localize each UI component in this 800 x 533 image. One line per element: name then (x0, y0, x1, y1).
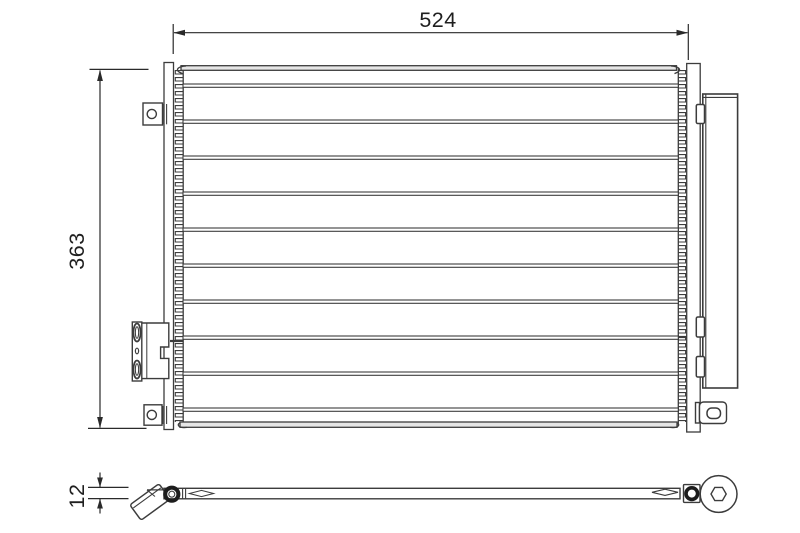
arrowhead-up (97, 70, 103, 81)
receiver-drier (703, 94, 738, 388)
side-view (130, 476, 737, 521)
dim-thickness-label: 12 (65, 484, 89, 509)
tank-fitting-bottom (696, 357, 704, 378)
core-tube (183, 156, 678, 159)
core-tube (183, 84, 678, 87)
core-tube (183, 300, 678, 303)
dimension-thickness: 12 (65, 473, 129, 514)
core-tube (183, 408, 678, 411)
arrowhead-down (97, 478, 103, 488)
core-tube (183, 372, 678, 375)
side-core-bar (164, 488, 680, 499)
dimension-width: 524 (173, 8, 688, 60)
dim-width-label: 524 (419, 8, 456, 32)
left-mounting-bracket-bottom (144, 405, 167, 425)
tank-fitting-middle (696, 317, 704, 337)
left-mounting-bracket-top (143, 103, 167, 125)
arrowhead-right (677, 30, 689, 36)
bracket-plate (143, 103, 163, 125)
arrowhead-left (174, 30, 186, 36)
fin-teeth-left (174, 70, 183, 422)
fin-teeth-right (678, 70, 687, 422)
tank-fitting-top (696, 105, 704, 124)
right-mounting-bracket (696, 402, 727, 424)
core-tube (183, 120, 678, 123)
core-tubes (183, 84, 678, 411)
dim-height-label: 363 (65, 232, 89, 269)
right-bracket-slot (707, 408, 721, 419)
core-tube (183, 336, 678, 339)
core-bottom-bar (178, 422, 679, 428)
arrowhead-down (97, 417, 103, 428)
drawing-canvas: 524 363 12 (0, 0, 800, 533)
arrowhead-up (97, 499, 103, 509)
core-fins-right (678, 70, 687, 422)
core-fins-left (174, 70, 183, 422)
core-tube (183, 228, 678, 231)
left-connector-block (132, 322, 169, 381)
side-drier-circle (700, 476, 737, 513)
core-tube (183, 192, 678, 195)
condenser-drawing: 524 363 12 (0, 0, 800, 533)
core-top-bar (177, 66, 679, 74)
front-view (132, 63, 737, 433)
core-tube (183, 264, 678, 267)
